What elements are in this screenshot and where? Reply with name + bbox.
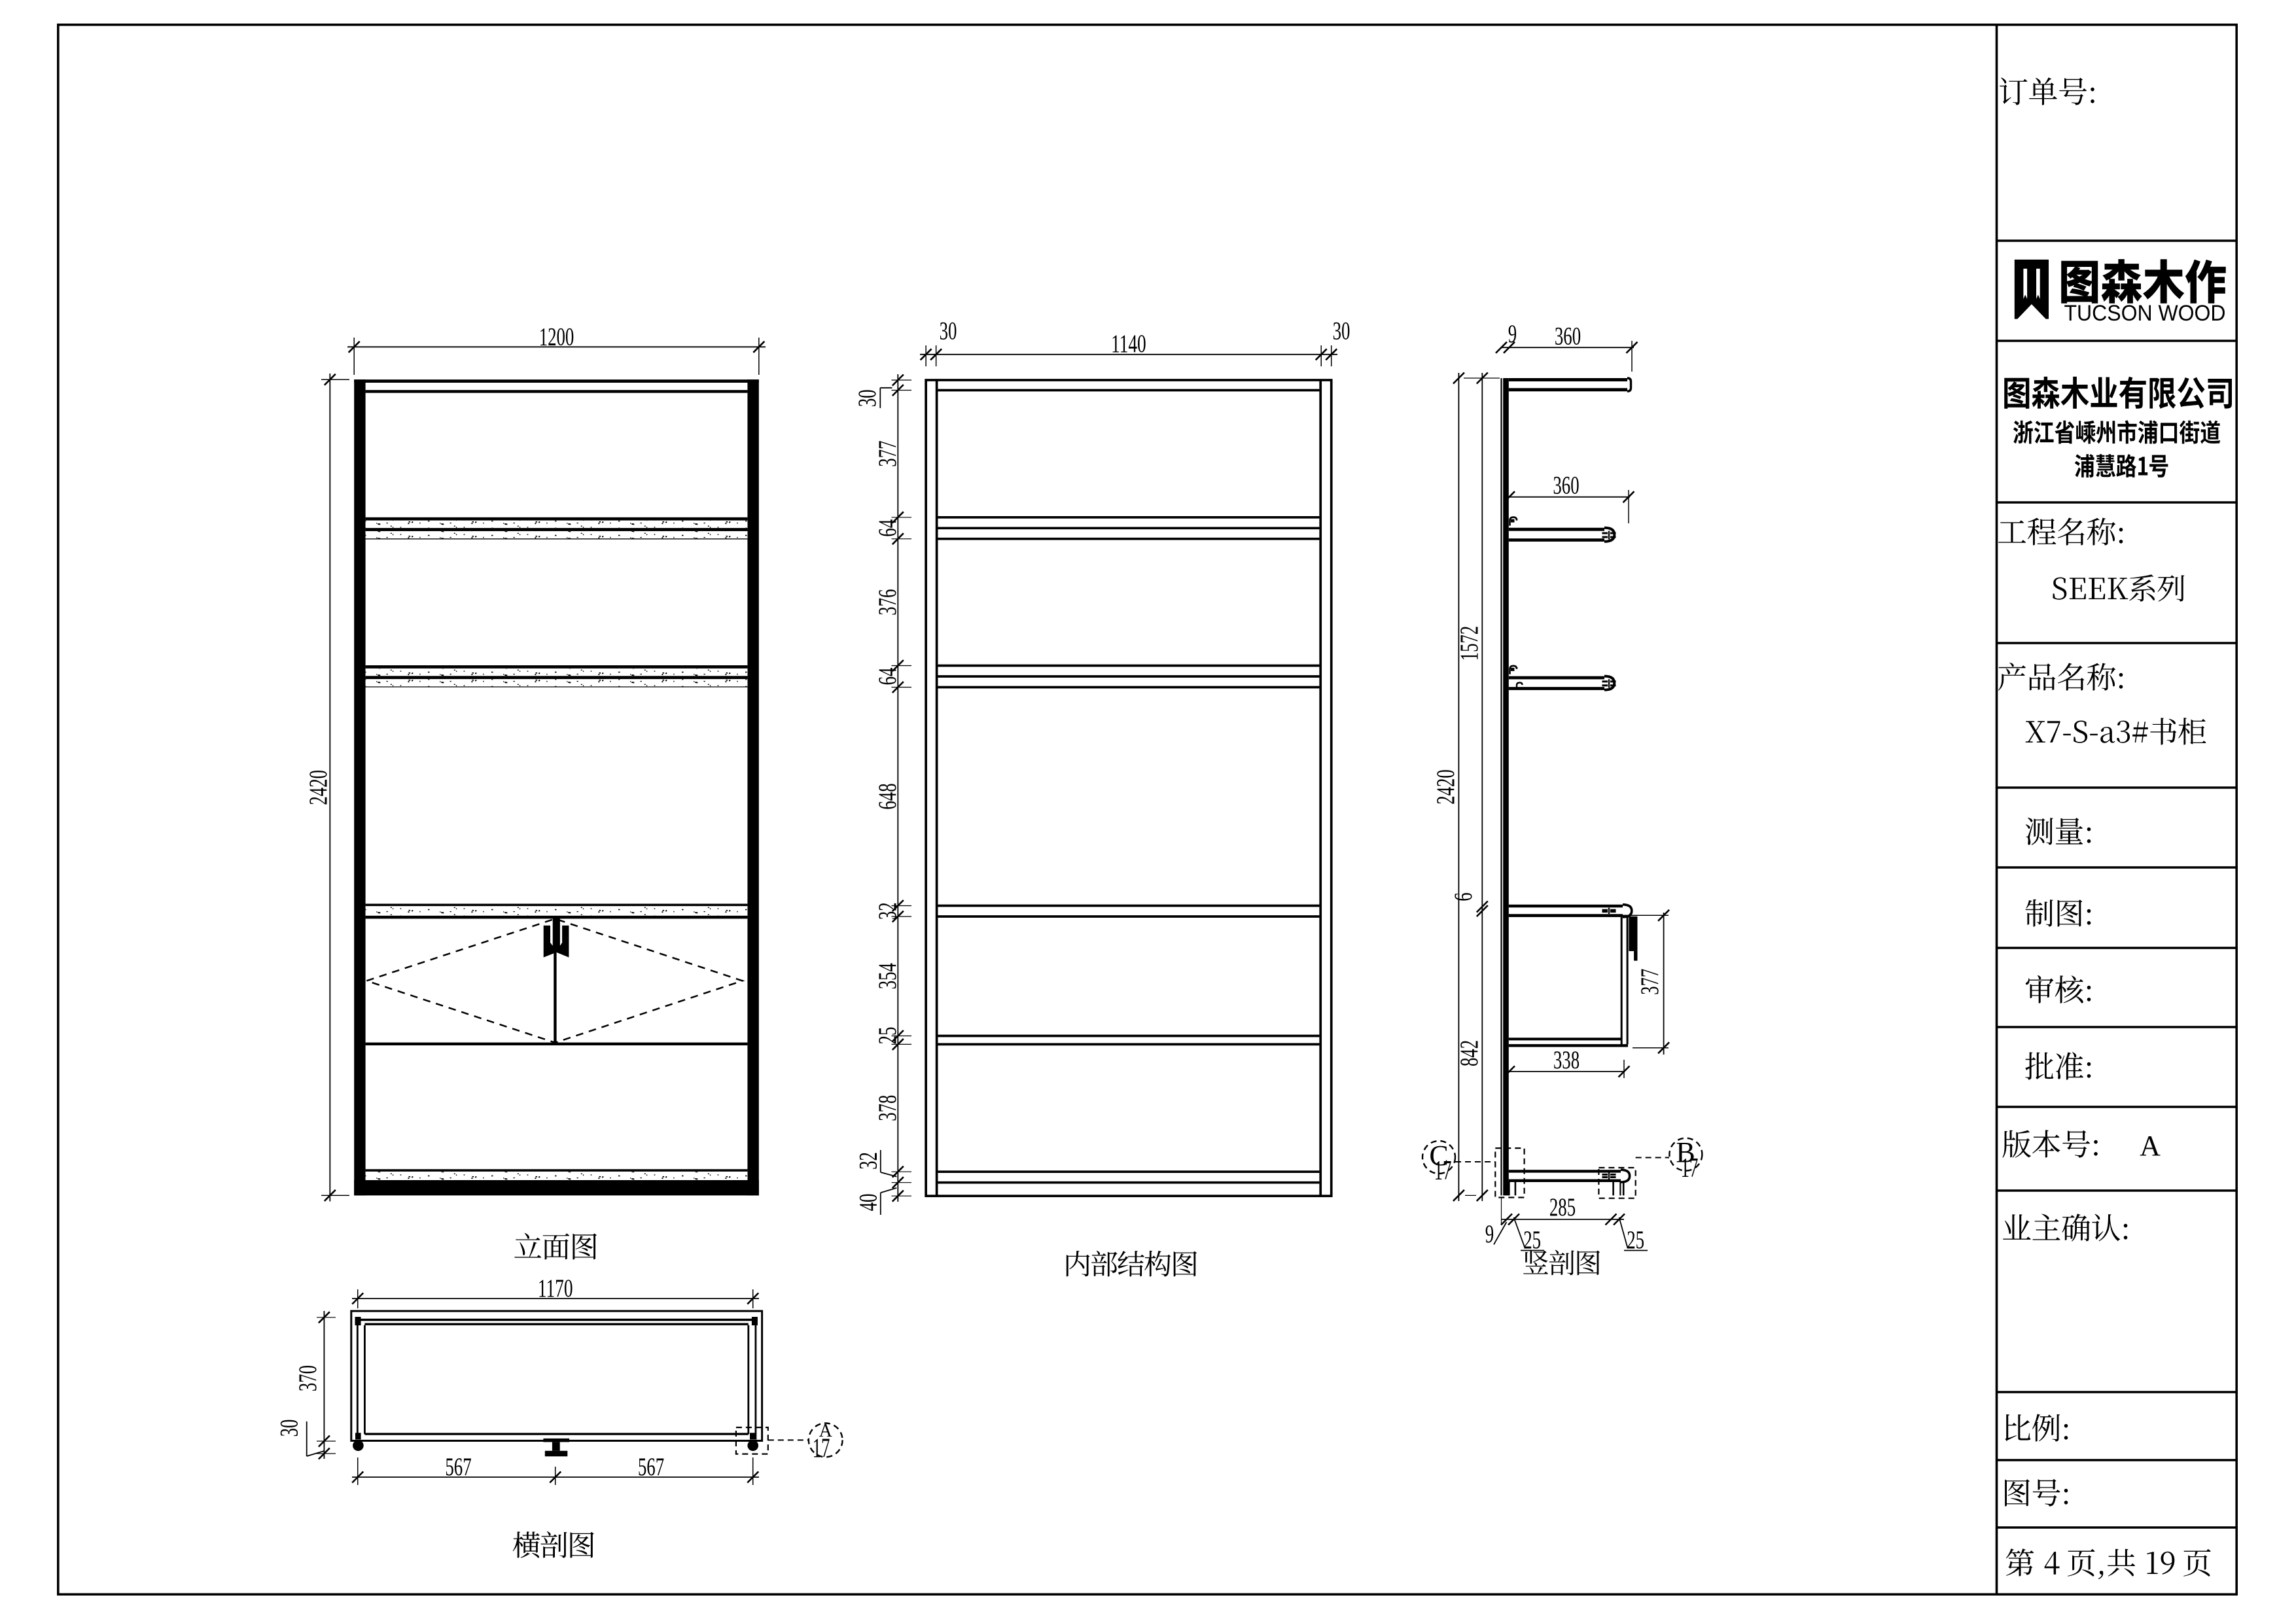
svg-text:30: 30 <box>275 1420 304 1437</box>
svg-text:338: 338 <box>1553 1045 1580 1074</box>
svg-text:40: 40 <box>854 1194 883 1212</box>
svg-text:30: 30 <box>1333 317 1351 345</box>
svg-text:9: 9 <box>1485 1219 1494 1248</box>
svg-text:2420: 2420 <box>1431 769 1460 805</box>
svg-text:32: 32 <box>854 1152 883 1170</box>
svg-text:17: 17 <box>1681 1153 1699 1183</box>
svg-text:64: 64 <box>873 667 902 685</box>
svg-text:377: 377 <box>873 441 902 467</box>
svg-text:376: 376 <box>873 589 902 616</box>
svg-text:377: 377 <box>1635 969 1664 995</box>
svg-text:25: 25 <box>873 1027 902 1045</box>
svg-text:17: 17 <box>1434 1156 1452 1186</box>
svg-text:64: 64 <box>873 519 902 537</box>
svg-text:6: 6 <box>1449 892 1477 901</box>
svg-text:17: 17 <box>813 1433 830 1463</box>
svg-text:1170: 1170 <box>538 1274 573 1302</box>
svg-text:648: 648 <box>873 783 902 809</box>
svg-text:285: 285 <box>1549 1193 1576 1221</box>
svg-text:567: 567 <box>638 1452 664 1481</box>
svg-text:25: 25 <box>1627 1225 1644 1254</box>
svg-text:354: 354 <box>873 963 902 989</box>
svg-text:378: 378 <box>873 1095 902 1121</box>
svg-text:567: 567 <box>445 1452 471 1481</box>
svg-text:1200: 1200 <box>539 323 574 351</box>
svg-text:370: 370 <box>293 1365 322 1391</box>
svg-text:A: A <box>2140 1130 2161 1162</box>
svg-text:TUCSON WOOD: TUCSON WOOD <box>2064 301 2226 326</box>
svg-text:32: 32 <box>873 902 902 920</box>
svg-text:30: 30 <box>940 317 957 345</box>
svg-text:30: 30 <box>853 389 881 407</box>
svg-text:360: 360 <box>1555 322 1581 351</box>
svg-text:360: 360 <box>1553 471 1579 500</box>
svg-text:1140: 1140 <box>1111 329 1146 358</box>
svg-text:25: 25 <box>1523 1225 1541 1254</box>
svg-text:9: 9 <box>1508 319 1517 348</box>
svg-text:2420: 2420 <box>304 770 332 805</box>
